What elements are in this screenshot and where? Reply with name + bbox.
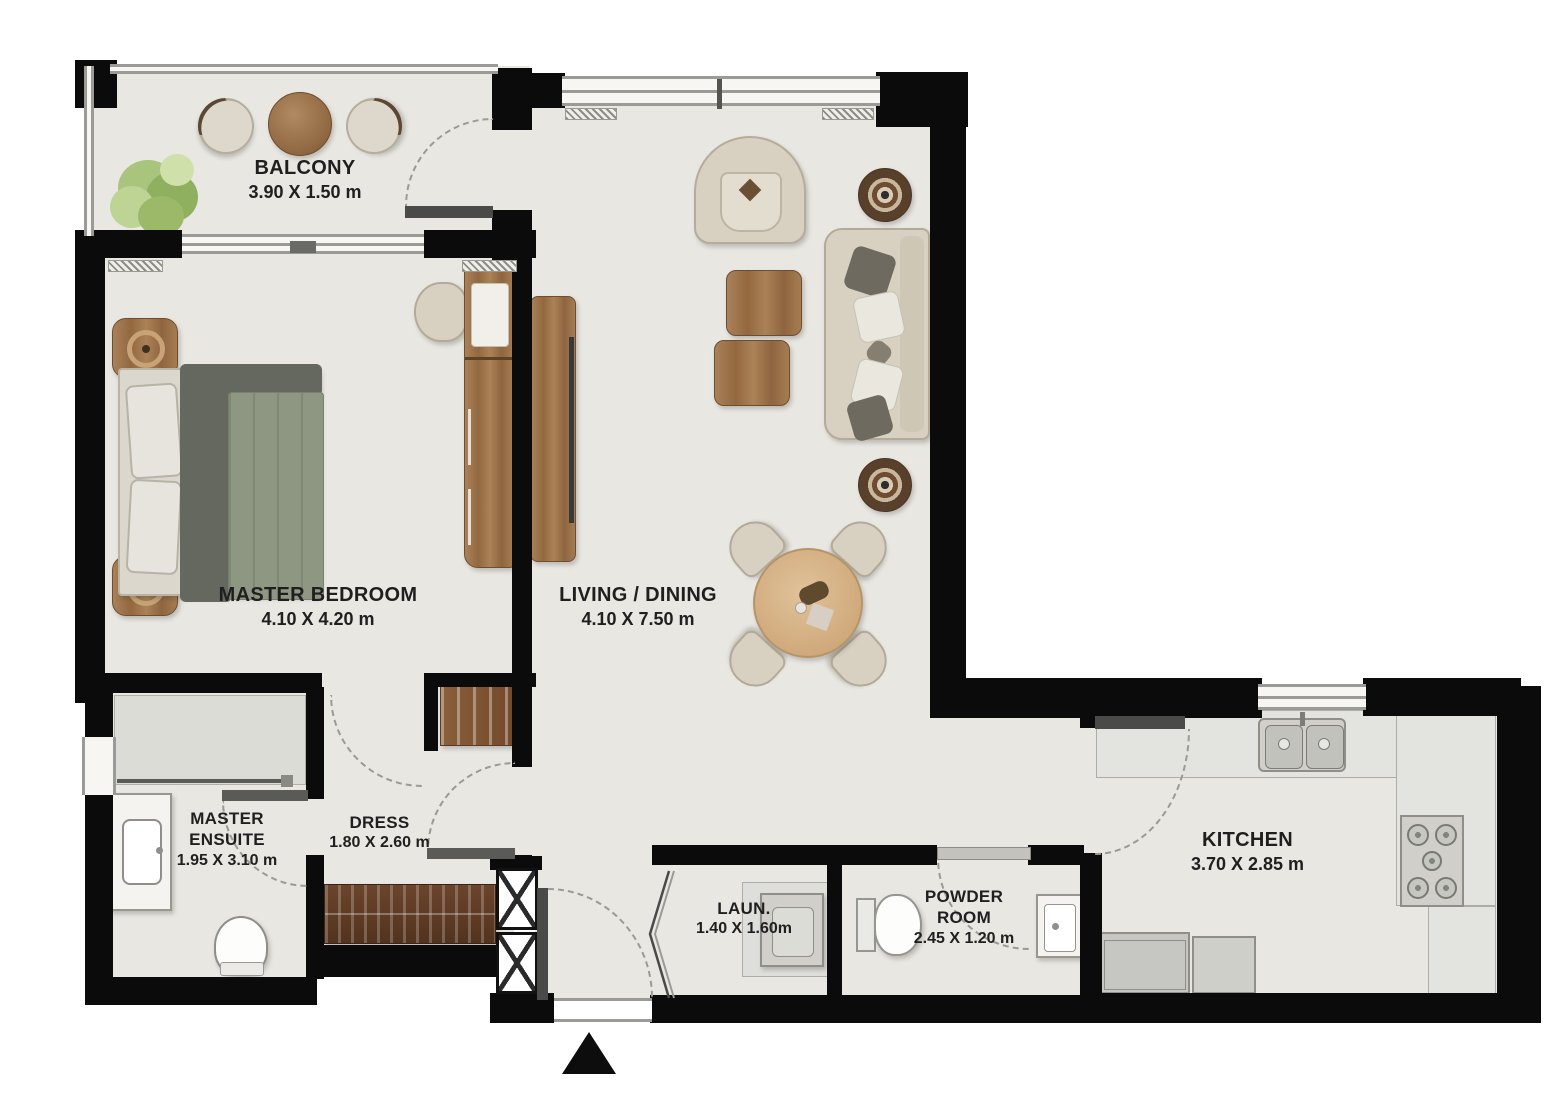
room-label-kitchen: KITCHEN 3.70 X 2.85 m (1140, 828, 1355, 876)
balcony-railing (84, 66, 94, 236)
bedroom-window (182, 234, 424, 254)
room-dims: 4.10 X 4.20 m (158, 608, 478, 631)
room-label-laundry: LAUN. 1.40 X 1.60m (678, 898, 810, 939)
kitchen-counter-corner (1428, 906, 1496, 994)
wall (75, 230, 105, 703)
room-dims: 1.40 X 1.60m (678, 919, 810, 939)
doorway-floor (322, 670, 424, 695)
bifold-door-icon (643, 868, 677, 1002)
coffee-table (714, 340, 790, 406)
armchair (694, 136, 806, 244)
wall (930, 73, 966, 687)
entry-door-leaf (537, 888, 548, 1000)
room-name: DRESS (302, 812, 457, 833)
tv-unit (530, 296, 576, 562)
shaft (496, 868, 538, 930)
wall (100, 230, 182, 258)
room-dims: 1.95 X 3.10 m (152, 851, 302, 871)
desk-surface (471, 283, 509, 347)
wall (85, 693, 113, 737)
toilet (856, 898, 876, 952)
kitchen-window (1258, 684, 1366, 710)
room-name: MASTER BEDROOM (158, 583, 478, 608)
door-leaf (937, 847, 1031, 860)
dress-wardrobe (324, 884, 496, 944)
stove (1400, 815, 1464, 907)
ensuite-window (82, 737, 116, 795)
wall (424, 673, 438, 751)
shower (114, 695, 306, 785)
room-name: BALCONY (180, 156, 430, 181)
room-label-powder-room: POWDER ROOM 2.45 X 1.20 m (902, 886, 1026, 949)
room-dims: 2.45 X 1.20 m (902, 929, 1026, 949)
balcony-railing (110, 64, 498, 74)
wall (1497, 686, 1541, 1023)
round-decor (858, 458, 912, 512)
kitchen-sink (1258, 718, 1346, 772)
room-name: KITCHEN (1140, 828, 1355, 853)
kitchen-appliance (1192, 936, 1256, 994)
wall (1088, 993, 1540, 1023)
wall (1028, 845, 1084, 865)
toilet (214, 916, 268, 976)
door-leaf (222, 790, 308, 801)
room-name: LIVING / DINING (518, 583, 758, 608)
kitchen-appliance (1096, 932, 1190, 994)
wardrobe (464, 268, 514, 568)
entry-arrow-icon (562, 1032, 616, 1074)
wall (306, 945, 518, 977)
powder-sink (1036, 894, 1082, 958)
wall (650, 995, 1090, 1023)
entry-threshold (554, 998, 652, 1022)
room-label-balcony: BALCONY 3.90 X 1.50 m (180, 156, 430, 204)
wall (1363, 678, 1521, 716)
door-leaf (405, 206, 493, 218)
coffee-table (726, 270, 802, 336)
living-window (562, 76, 880, 106)
room-label-master-bedroom: MASTER BEDROOM 4.10 X 4.20 m (158, 583, 478, 631)
doorway-floor (512, 767, 532, 855)
wall (100, 673, 322, 693)
wall (876, 72, 968, 127)
wall (1080, 853, 1102, 1003)
shaft (496, 932, 538, 994)
dining-table (753, 548, 863, 658)
desk-chair (414, 282, 468, 342)
room-name: POWDER ROOM (902, 886, 1026, 929)
tv-icon (569, 337, 574, 523)
room-label-master-ensuite: MASTER ENSUITE 1.95 X 3.10 m (152, 808, 302, 871)
room-dims: 1.80 X 2.60 m (302, 833, 457, 853)
curtain-icon (565, 108, 617, 120)
curtain-icon (462, 260, 517, 272)
room-dims: 3.70 X 2.85 m (1140, 853, 1355, 876)
room-label-living-dining: LIVING / DINING 4.10 X 7.50 m (518, 583, 758, 631)
hall-floor (928, 718, 1088, 848)
room-name: LAUN. (678, 898, 810, 919)
balcony-table (268, 92, 332, 156)
wall (85, 795, 113, 1005)
curtain-icon (108, 260, 163, 272)
room-label-dress: DRESS 1.80 X 2.60 m (302, 812, 457, 853)
wall (95, 977, 317, 1005)
round-decor (858, 168, 912, 222)
wall (652, 845, 937, 865)
wall (827, 865, 842, 997)
room-dims: 3.90 X 1.50 m (180, 181, 430, 204)
wall (508, 73, 565, 108)
curtain-icon (822, 108, 874, 120)
floor-plan: BALCONY 3.90 X 1.50 m MASTER BEDROOM 4.1… (0, 0, 1564, 1100)
doorway-floor (490, 125, 532, 213)
room-dims: 4.10 X 7.50 m (518, 608, 758, 631)
room-name: MASTER ENSUITE (152, 808, 302, 851)
wall (512, 687, 532, 767)
wall (424, 673, 536, 687)
door-leaf (1095, 716, 1185, 729)
wall (306, 687, 324, 799)
bed (118, 368, 320, 596)
sofa (824, 228, 930, 440)
